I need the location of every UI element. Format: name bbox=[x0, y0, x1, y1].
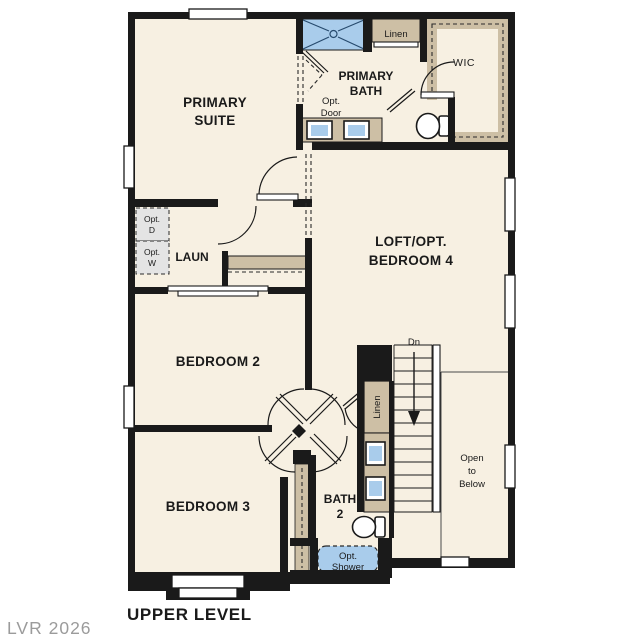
wall-exterior-top bbox=[128, 12, 515, 19]
window bbox=[189, 9, 247, 19]
wall-bedroom2-top-left bbox=[128, 287, 168, 294]
label-opt-dryer-line2: D bbox=[149, 225, 155, 235]
room-label-wic: WIC bbox=[453, 57, 475, 69]
room-label-bath2-line2: 2 bbox=[337, 507, 344, 521]
room-label-loft-line1: LOFT/OPT. bbox=[375, 234, 447, 249]
footer: UPPER LEVEL LVR 2026 bbox=[7, 605, 252, 638]
room-label-bedroom2: BEDROOM 2 bbox=[176, 354, 260, 369]
room-label-bedroom3: BEDROOM 3 bbox=[166, 499, 251, 514]
toilet-tank bbox=[439, 116, 449, 136]
stair-handrail bbox=[433, 345, 440, 512]
wall-shower-bay-left bbox=[310, 538, 318, 578]
bay-window-inner bbox=[179, 588, 237, 598]
toilet-icon bbox=[353, 517, 376, 538]
linen-upper-front bbox=[374, 42, 418, 47]
room-label-primary-bath-line1: PRIMARY bbox=[339, 69, 394, 83]
toilet-tank bbox=[375, 517, 385, 537]
label-linen-stairs: Linen bbox=[372, 395, 383, 418]
label-opt-door-line1: Opt. bbox=[322, 96, 340, 107]
wall-stairs-vanity bbox=[389, 381, 394, 538]
page-title: UPPER LEVEL bbox=[127, 605, 252, 624]
closet-bypass-door bbox=[178, 291, 258, 296]
wall-hall-loft bbox=[305, 238, 312, 390]
wall-linen-wic bbox=[420, 12, 427, 62]
wall-toilet-nook bbox=[448, 97, 455, 142]
wall-bath-loft bbox=[312, 142, 515, 150]
label-opt-dryer-line1: Opt. bbox=[144, 214, 160, 224]
wall-exterior-left bbox=[128, 12, 135, 591]
label-open-below-line2: to bbox=[468, 466, 476, 477]
door-panel-primary-suite bbox=[257, 194, 298, 200]
wall-bedroom3-right bbox=[280, 477, 288, 575]
wall-bath2-left bbox=[308, 455, 316, 543]
label-open-below-line3: Below bbox=[459, 479, 485, 490]
room-label-laundry: LAUN bbox=[175, 250, 208, 264]
bay-window-outer bbox=[172, 575, 244, 588]
label-opt-washer-line1: Opt. bbox=[144, 247, 160, 257]
wall-shower-bay-right bbox=[378, 538, 392, 578]
wall-closet-left bbox=[222, 251, 228, 287]
sink-basin bbox=[311, 125, 328, 136]
watermark: LVR 2026 bbox=[7, 618, 92, 638]
wall-suite-bottom-left bbox=[128, 199, 218, 207]
window bbox=[124, 146, 134, 188]
window bbox=[441, 557, 469, 567]
label-opt-shower-line1: Opt. bbox=[339, 551, 357, 562]
wall-shower-right bbox=[363, 12, 372, 52]
room-label-bath2-line1: BATH bbox=[324, 492, 356, 506]
wall-shower-left-upper bbox=[296, 12, 303, 54]
door-panel-wic bbox=[421, 92, 454, 98]
label-opt-shower-line2: Shower bbox=[332, 562, 364, 573]
room-label-primary-suite-line1: PRIMARY bbox=[183, 95, 247, 110]
floor-plan: PRIMARY SUITE PRIMARY BATH WIC Linen Opt… bbox=[0, 0, 640, 640]
toilet-icon bbox=[417, 114, 440, 139]
room-label-primary-suite-line2: SUITE bbox=[194, 113, 235, 128]
room-label-loft-line2: BEDROOM 4 bbox=[369, 253, 454, 268]
label-open-below-line1: Open bbox=[460, 453, 483, 464]
window bbox=[505, 445, 515, 488]
closet-bypass-door bbox=[168, 286, 268, 291]
label-stairs-dn: Dn bbox=[408, 337, 420, 348]
sink-basin bbox=[369, 446, 382, 461]
wall-shower-left-lower bbox=[296, 104, 303, 150]
room-label-primary-bath-line2: BATH bbox=[350, 84, 382, 98]
label-linen-upper: Linen bbox=[384, 29, 407, 40]
floor-plan-page: PRIMARY SUITE PRIMARY BATH WIC Linen Opt… bbox=[0, 0, 640, 640]
label-opt-door-line2: Door bbox=[321, 108, 342, 119]
window bbox=[505, 275, 515, 328]
wall-bedroom2-bottom bbox=[128, 425, 272, 432]
sink-basin bbox=[348, 125, 365, 136]
window bbox=[505, 178, 515, 231]
wall-bedroom2-top-right bbox=[268, 287, 312, 294]
label-opt-washer-line2: W bbox=[148, 258, 156, 268]
window bbox=[124, 386, 134, 428]
sink-basin bbox=[369, 481, 382, 496]
bedroom2-closet-shelf bbox=[228, 256, 306, 269]
